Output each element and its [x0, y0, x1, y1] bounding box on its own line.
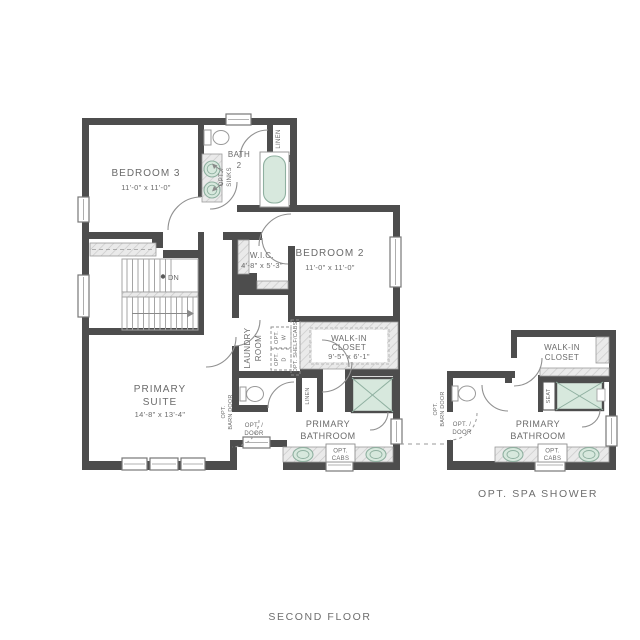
primary-bath-main-label: PRIMARY [306, 419, 350, 429]
opt-barn-door-label: BARN DOOR [228, 394, 234, 429]
opt-door-label: OPT. / [453, 422, 472, 428]
opt-door-label: OPT. / [245, 423, 264, 429]
dn-label: DN [168, 273, 179, 282]
primary-bath-main-label: BATHROOM [300, 431, 355, 441]
window [122, 458, 147, 470]
walkin-main-label: WALK-IN [331, 334, 367, 343]
door-arc-toilet-opt [482, 385, 508, 411]
bedroom2-dims: 11'-0" x 11'-0" [305, 263, 355, 272]
opt-sinks-label: SINKS [227, 167, 233, 187]
walkin-opt-shelf [596, 337, 609, 363]
bath2-label: BATH [228, 150, 250, 159]
wic2-shelf [257, 281, 288, 289]
floor-title: SECOND FLOOR [268, 611, 371, 623]
toilet [204, 130, 229, 145]
window [390, 237, 401, 287]
floor-plan-canvas: BEDROOM 3 11'-0" x 11'-0" BATH 2 OPT. / … [0, 0, 640, 640]
walkin-main-label: CLOSET [332, 343, 366, 352]
shower-niche [597, 389, 605, 401]
floor-plan-svg: BEDROOM 3 11'-0" x 11'-0" BATH 2 OPT. / … [0, 0, 640, 640]
opt-cabs-label: OPT. [333, 449, 348, 455]
bedroom3-dims: 11'-0" x 11'-0" [121, 183, 171, 192]
primary-bath-opt-label: BATHROOM [510, 431, 565, 441]
bathtub [260, 152, 289, 207]
opt-sinks-label: OPT. / [219, 168, 225, 187]
opt-washer-label: OPT. [274, 331, 280, 344]
opt-cabs-label: CABS [332, 456, 350, 462]
sink [579, 448, 599, 462]
seat-label: SEAT [546, 388, 552, 403]
primary-bath-opt-label: PRIMARY [516, 419, 560, 429]
bedroom2-label: BEDROOM 2 [295, 248, 364, 259]
primary-suite-dims: 14'-8" x 13'-4" [135, 410, 186, 419]
sink [204, 161, 220, 177]
stair-rail [122, 292, 198, 297]
window [78, 275, 89, 317]
door-arc-shower-main [370, 412, 388, 430]
door-arc-toilet-main [268, 382, 294, 408]
bath2-number: 2 [237, 161, 242, 170]
walkin-opt-shelf [540, 368, 609, 376]
labels: BEDROOM 3 11'-0" x 11'-0" BATH 2 OPT. / … [111, 129, 598, 623]
sink [366, 448, 386, 462]
window [391, 419, 402, 444]
door-arc-bedroom2 [259, 214, 291, 246]
opt-dryer-label: OPT. [274, 353, 280, 366]
bedroom3-label: BEDROOM 3 [111, 168, 180, 179]
linen-label: LINEN [305, 387, 311, 404]
sink [204, 182, 220, 198]
walkin-main-dims: 9'-5" x 6'-1" [328, 352, 370, 361]
laundry-label: ROOM [254, 335, 263, 362]
toilet [452, 386, 476, 401]
window [150, 458, 178, 470]
spa-shower-opt [556, 382, 605, 410]
opt-washer-label: W [282, 334, 288, 340]
walkin-opt-label: WALK-IN [544, 343, 580, 352]
door-arc-primary-suite [206, 337, 236, 367]
sink [503, 448, 523, 462]
opt-dryer-label: D [282, 357, 288, 361]
window [78, 197, 89, 222]
window [226, 114, 251, 125]
opt-shelf-cabs-label: OPT. SHELF/CABS [293, 321, 299, 372]
dn-marker-dot [161, 274, 165, 278]
opt-barn-door-label: BARN DOOR [440, 391, 446, 426]
toilet [240, 387, 264, 402]
opt-barn-door-label: OPT. [221, 405, 227, 418]
wic2-dims: 4'-8" x 5'-3" [241, 261, 283, 270]
opt-barn-door-label: OPT. [433, 402, 439, 415]
primary-suite-label: PRIMARY [134, 384, 186, 395]
window [606, 416, 617, 446]
door-arc-shower-opt [582, 410, 600, 427]
sink [293, 448, 313, 462]
opt-door-label: DOOR [244, 431, 264, 437]
window [181, 458, 205, 470]
walkin-opt-label: CLOSET [545, 353, 579, 362]
shower-main [352, 378, 393, 412]
door-arc-walkin-opt [514, 358, 542, 386]
opt-cabs-label: CABS [544, 456, 562, 462]
door-arc-bedroom3 [168, 197, 201, 230]
wic2-label: W.I.C. [250, 251, 274, 260]
primary-suite-label: SUITE [143, 397, 177, 408]
opt-cabs-label: OPT. [545, 449, 560, 455]
opt-door-label: DOOR [452, 430, 472, 436]
option-caption: OPT. SPA SHOWER [478, 488, 598, 500]
fixtures [202, 130, 609, 462]
linen-label: LINEN [276, 129, 282, 148]
laundry-label: LAUNDRY [243, 327, 252, 368]
